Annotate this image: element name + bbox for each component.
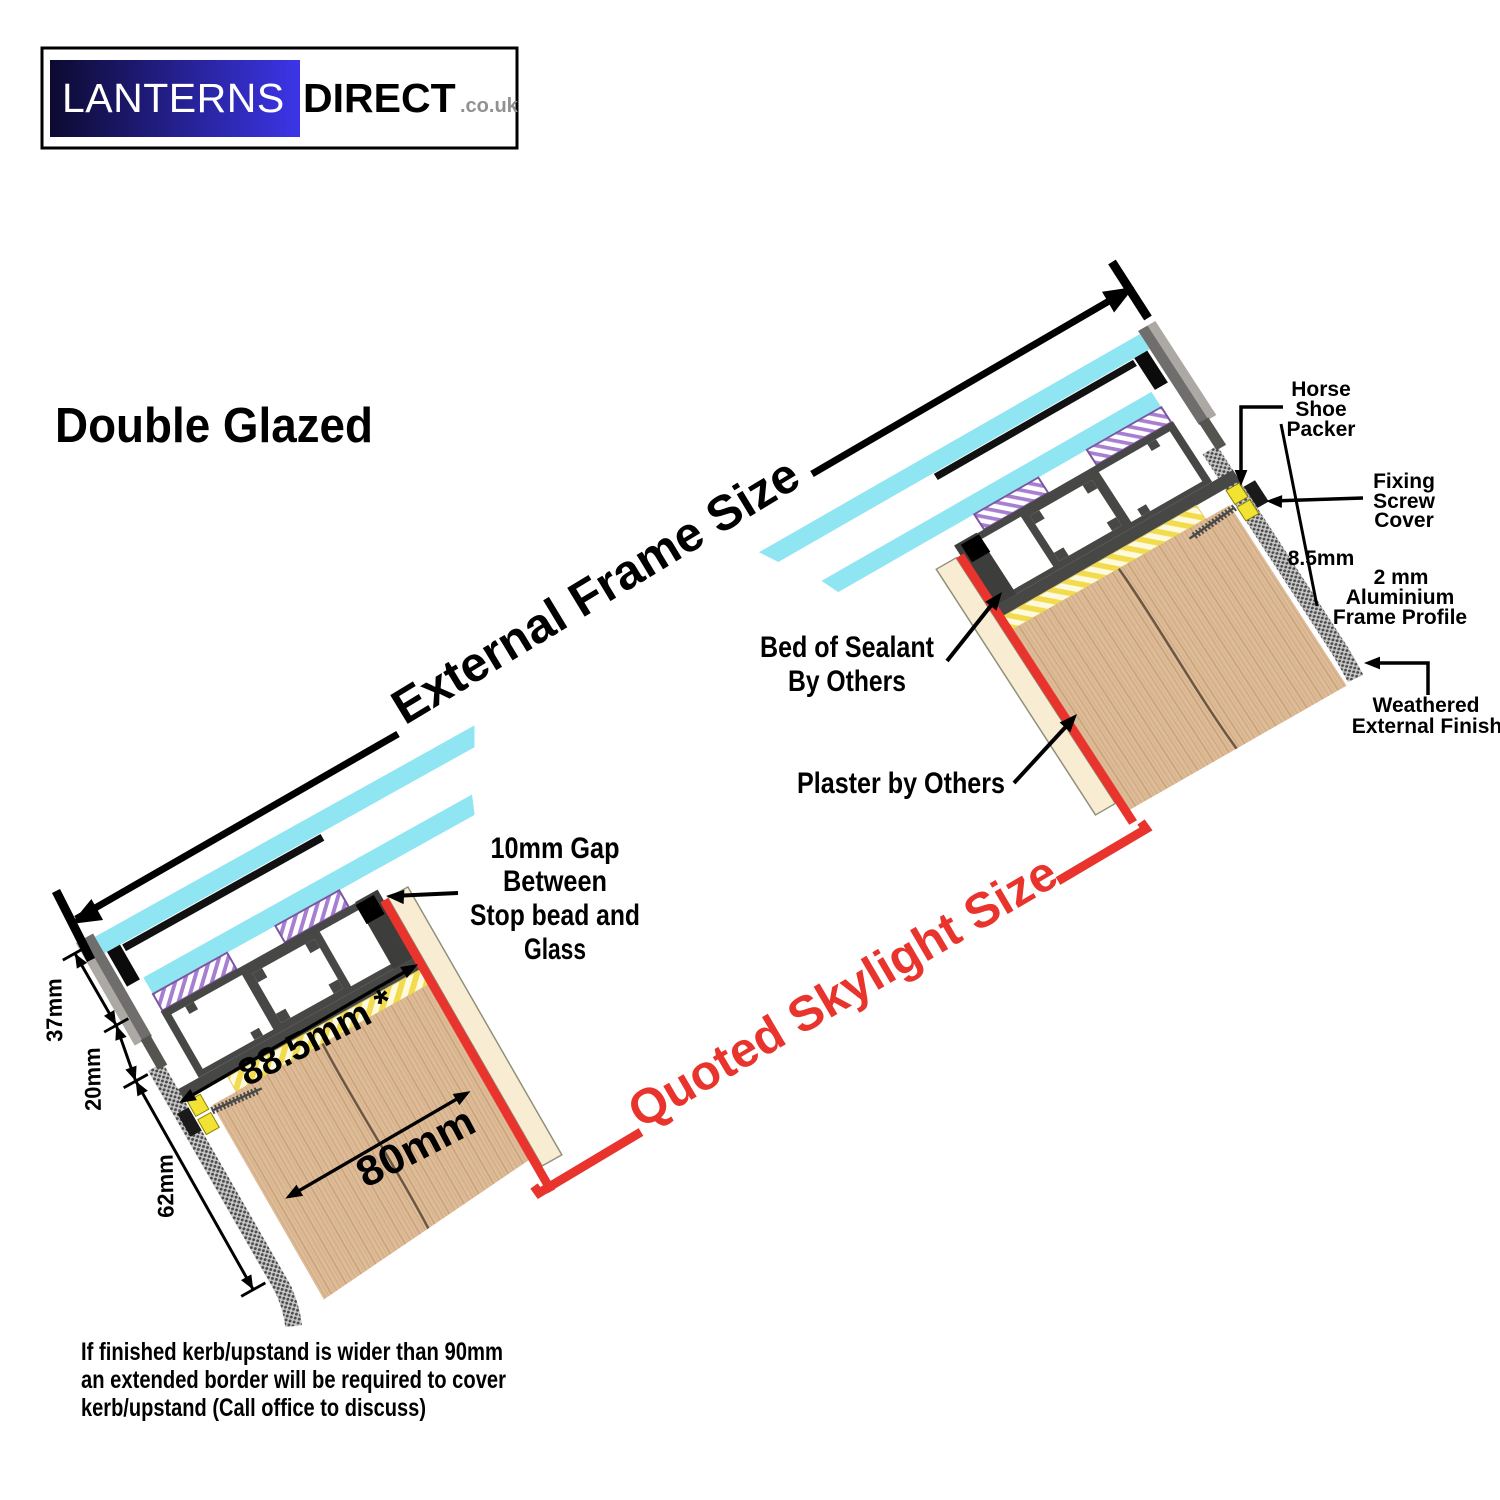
- svg-text:.co.uk: .co.uk: [460, 95, 519, 117]
- svg-text:an extended border will be req: an extended border will be required to c…: [81, 1366, 506, 1394]
- svg-text:External Finish: External Finish: [1352, 715, 1500, 738]
- svg-text:Packer: Packer: [1287, 418, 1356, 441]
- svg-text:Double Glazed: Double Glazed: [55, 399, 373, 453]
- svg-text:62mm: 62mm: [152, 1154, 178, 1218]
- svg-text:Plaster by Others: Plaster by Others: [797, 767, 1005, 800]
- svg-text:LANTERNS: LANTERNS: [62, 75, 285, 121]
- svg-text:10mm Gap: 10mm Gap: [491, 832, 620, 865]
- svg-text:Between: Between: [503, 865, 607, 898]
- svg-text:kerb/upstand (Call office to d: kerb/upstand (Call office to discuss): [81, 1394, 426, 1422]
- svg-text:Stop bead and: Stop bead and: [470, 899, 640, 932]
- svg-text:8.5mm: 8.5mm: [1288, 547, 1355, 570]
- svg-text:By Others: By Others: [788, 665, 906, 698]
- svg-text:20mm: 20mm: [80, 1047, 106, 1111]
- svg-text:DIRECT: DIRECT: [303, 75, 456, 121]
- svg-text:37mm: 37mm: [41, 978, 67, 1042]
- svg-text:Bed of Sealant: Bed of Sealant: [760, 631, 934, 664]
- svg-text:Frame Profile: Frame Profile: [1333, 606, 1467, 629]
- svg-text:If finished kerb/upstand is wi: If finished kerb/upstand is wider than 9…: [81, 1338, 503, 1366]
- svg-text:Cover: Cover: [1374, 509, 1434, 532]
- svg-text:Weathered: Weathered: [1373, 694, 1480, 717]
- svg-text:Glass: Glass: [524, 933, 586, 966]
